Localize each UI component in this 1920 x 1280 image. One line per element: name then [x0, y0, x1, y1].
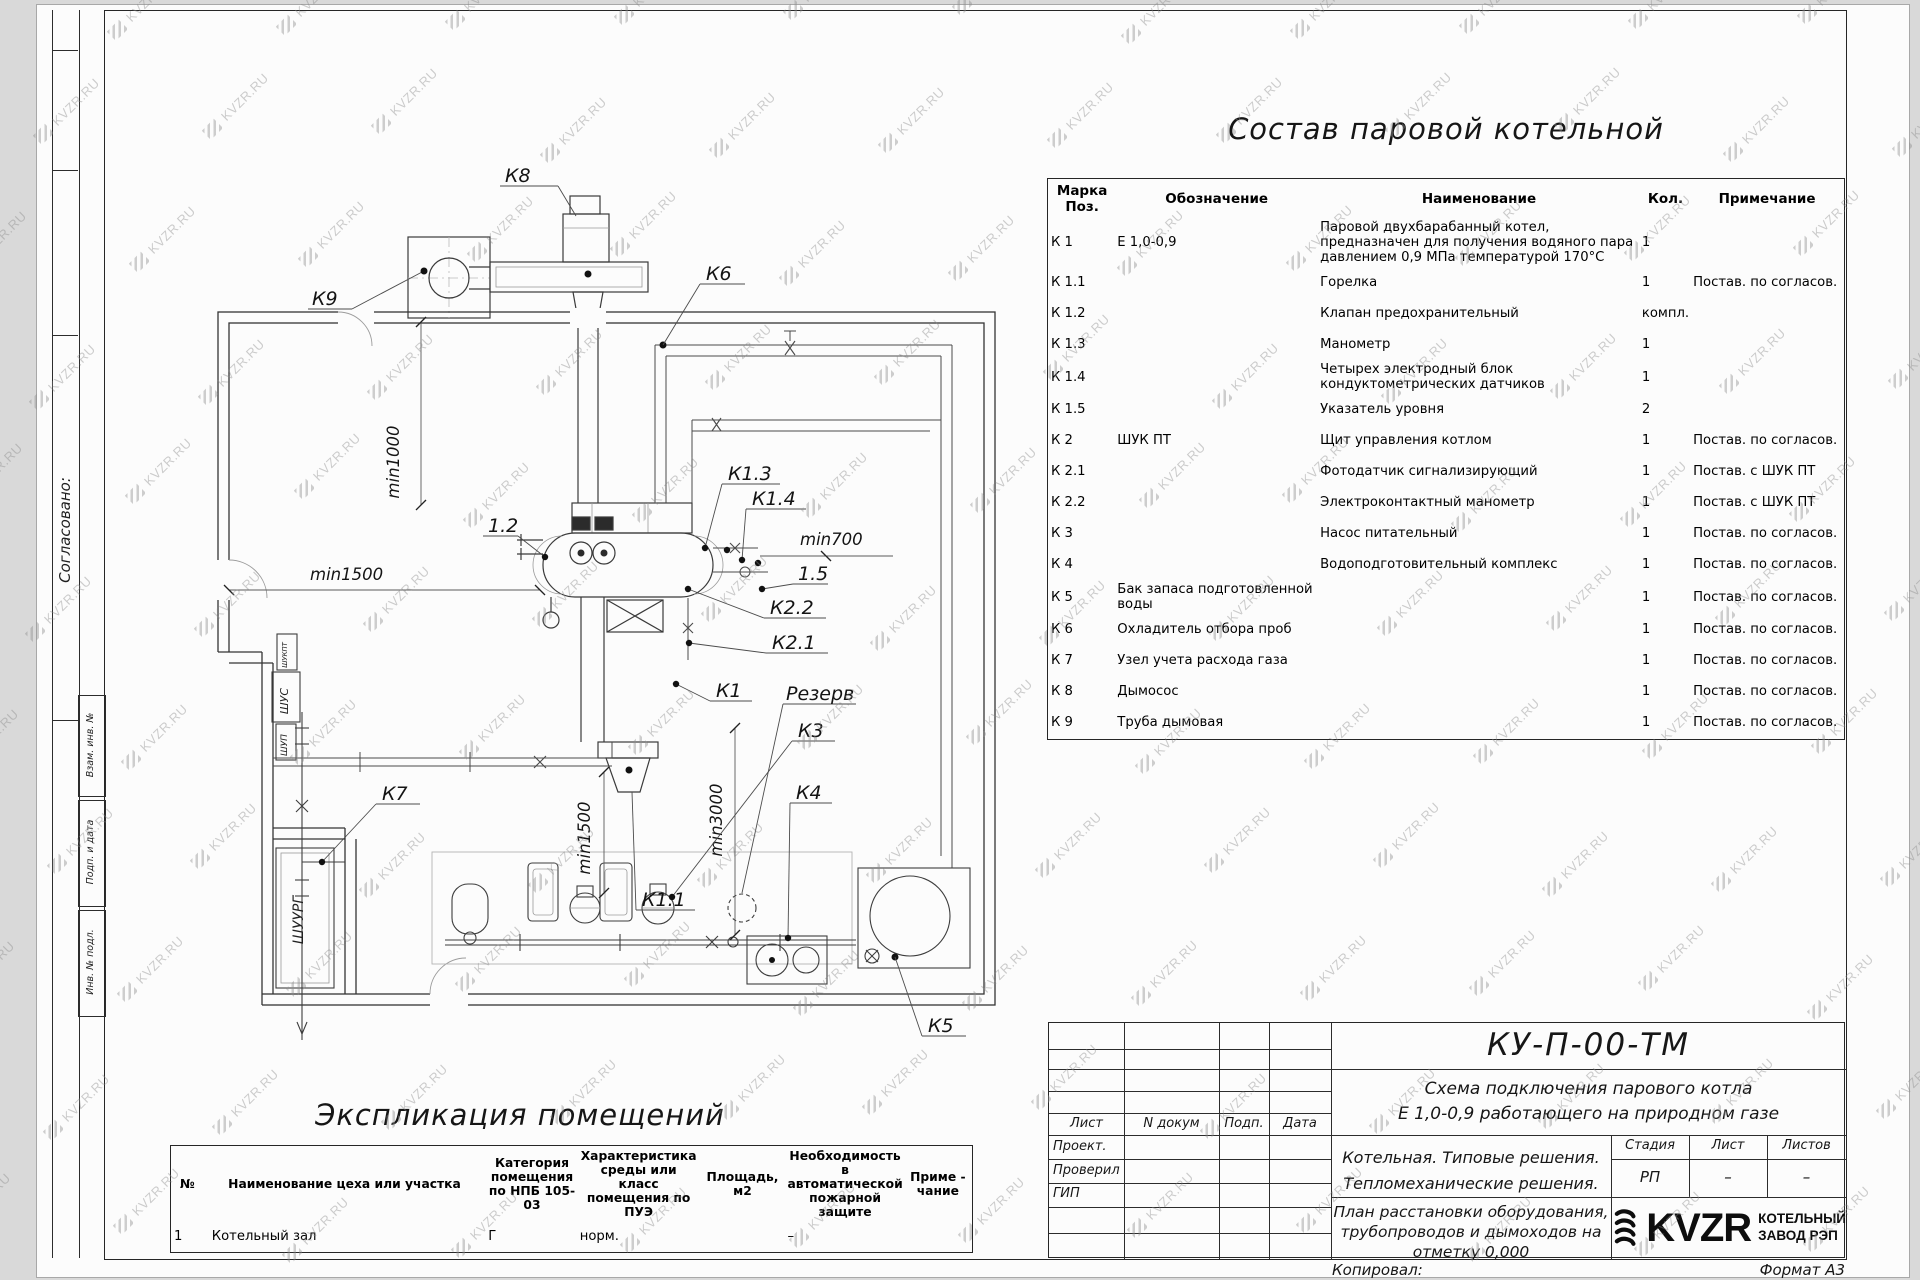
- comp-table-row: К 1.2Клапан предохранительныйкомпл.: [1050, 299, 1842, 328]
- comp-table-cell: Е 1,0-0,9: [1116, 219, 1317, 266]
- watermark: KVZR.RU: [0, 1170, 13, 1240]
- expl-table-row: 1Котельный залГнорм.–: [173, 1222, 970, 1250]
- company-line-1: КОТЕЛЬНЫЙ: [1758, 1211, 1846, 1226]
- comp-table-cell: [1116, 395, 1317, 424]
- watermark-text: KVZR.RU: [0, 706, 21, 759]
- tb-col-list: Лист: [1049, 1116, 1124, 1131]
- margin-divider: [52, 720, 78, 721]
- comp-table-cell: К 3: [1050, 519, 1114, 548]
- comp-table-cell: Дымосос: [1116, 677, 1317, 706]
- label-k1: К1: [716, 680, 742, 702]
- comp-table-cell: компл.: [1641, 299, 1690, 328]
- comp-table-cell: 1: [1641, 457, 1690, 486]
- dim-min700: min700: [800, 530, 863, 549]
- comp-table-cell: К 1.2: [1050, 299, 1114, 328]
- comp-table-cell: [1319, 677, 1639, 706]
- comp-table-cell: 1: [1641, 615, 1690, 644]
- comp-table-cell: Бак запаса подготовленной воды: [1116, 581, 1317, 613]
- tb-subtitle-1: Схема подключения парового котла: [1425, 1079, 1753, 1099]
- comp-table-cell: Щит управления котлом: [1319, 426, 1639, 455]
- comp-table-cell: Постав. по согласов.: [1692, 550, 1842, 579]
- watermark-text: KVZR.RU: [0, 938, 17, 991]
- comp-table-cell: [1692, 330, 1842, 359]
- expl-table-cell: Г: [487, 1222, 576, 1250]
- comp-table-row: К 7Узел учета расхода газа1Постав. по со…: [1050, 646, 1842, 675]
- comp-column-header: Наименование: [1319, 181, 1639, 217]
- comp-table-cell: Электроконтактный манометр: [1319, 488, 1639, 517]
- cabinet-label-shukpt: ШУКПТ: [281, 641, 289, 667]
- explication-table-title: Экспликация помещений: [170, 1098, 870, 1132]
- comp-table-row: К 2ШУК ПТЩит управления котлом1Постав. п…: [1050, 426, 1842, 455]
- expl-column-header: Приме - чание: [906, 1148, 970, 1220]
- comp-table-row: К 2.2Электроконтактный манометр1Постав. …: [1050, 488, 1842, 517]
- cabinet-label-shup: ШУП: [280, 734, 290, 756]
- comp-column-header: Кол.: [1641, 181, 1690, 217]
- margin-column-outer: [52, 10, 80, 1258]
- dim-min1500-left: min1500: [310, 565, 383, 584]
- expl-column-header: Категория помещения по НПБ 105-03: [487, 1148, 576, 1220]
- tb-drawing-1: План расстановки оборудования,: [1334, 1203, 1609, 1221]
- expl-column-header: Характеристика среды или класс помещения…: [579, 1148, 699, 1220]
- tb-subtitle-2: Е 1,0-0,9 работающего на природном газе: [1398, 1104, 1779, 1124]
- comp-table-cell: Фотодатчик сигнализирующий: [1319, 457, 1639, 486]
- comp-table-cell: [1692, 219, 1842, 266]
- watermark: KVZR.RU: [0, 440, 25, 510]
- cabinet-label-shus: ШУС: [278, 688, 291, 714]
- comp-table-cell: К 5: [1050, 581, 1114, 613]
- label-k9: К9: [312, 288, 338, 310]
- expl-column-header: №: [173, 1148, 202, 1220]
- label-k1-1: К1.1: [642, 889, 686, 911]
- label-rezerv: Резерв: [786, 683, 854, 705]
- comp-table-cell: [1116, 457, 1317, 486]
- comp-table-cell: [1116, 550, 1317, 579]
- comp-table-cell: [1116, 268, 1317, 297]
- kvzr-coil-icon: [1611, 1205, 1639, 1251]
- expl-table-cell: [701, 1222, 785, 1250]
- comp-table-cell: 1: [1641, 581, 1690, 613]
- comp-table-cell: Постав. с ШУК ПТ: [1692, 457, 1842, 486]
- comp-table-cell: К 1.3: [1050, 330, 1114, 359]
- comp-table-cell: 1: [1641, 330, 1690, 359]
- comp-table-row: К 1.3Манометр1: [1050, 330, 1842, 359]
- comp-table-row: К 2.1Фотодатчик сигнализирующий1Постав. …: [1050, 457, 1842, 486]
- tb-col-data: Дата: [1269, 1116, 1331, 1131]
- k5-tank: [858, 868, 970, 968]
- dim-min1500-bottom: min1500: [575, 801, 594, 874]
- agreed-label: Согласовано:: [55, 430, 75, 630]
- label-k3: К3: [798, 720, 824, 742]
- comp-table-cell: Постав. по согласов.: [1692, 581, 1842, 613]
- comp-table-cell: [1692, 299, 1842, 328]
- comp-table-cell: Постав. по согласов.: [1692, 268, 1842, 297]
- comp-table-cell: Насос питательный: [1319, 519, 1639, 548]
- comp-table-cell: 1: [1641, 708, 1690, 737]
- comp-table-cell: Постав. по согласов.: [1692, 708, 1842, 737]
- expl-table-cell: Котельный зал: [204, 1222, 486, 1250]
- tb-drawing-2: трубопроводов и дымоходов на: [1340, 1223, 1601, 1241]
- tb-stage-label: Стадия: [1611, 1138, 1689, 1153]
- label-k6: К6: [706, 263, 732, 285]
- company-line-2: ЗАВОД РЭП: [1758, 1228, 1838, 1243]
- tb-col-podp: Подп.: [1219, 1116, 1269, 1131]
- comp-table-cell: Паровой двухбарабанный котел, предназнач…: [1319, 219, 1639, 266]
- label-k1-4: К1.4: [752, 488, 796, 510]
- comp-table-cell: [1692, 395, 1842, 424]
- expl-table-cell: норм.: [579, 1222, 699, 1250]
- gas-annex: [276, 712, 345, 1040]
- comp-table-cell: Постав. по согласов.: [1692, 519, 1842, 548]
- comp-table-row: К 9Труба дымовая1Постав. по согласов.: [1050, 708, 1842, 737]
- explication-table: №Наименование цеха или участкаКатегория …: [170, 1145, 973, 1253]
- margin-divider: [52, 170, 78, 171]
- watermark: KVZR.RU: [0, 208, 29, 278]
- comp-table-row: К 4Водоподготовительный комплекс1Постав.…: [1050, 550, 1842, 579]
- comp-table-cell: К 1.1: [1050, 268, 1114, 297]
- comp-column-header: Примечание: [1692, 181, 1842, 217]
- comp-table-cell: 1: [1641, 426, 1690, 455]
- comp-table-row: К 1Е 1,0-0,9Паровой двухбарабанный котел…: [1050, 219, 1842, 266]
- comp-table-row: К 8Дымосос1Постав. по согласов.: [1050, 677, 1842, 706]
- watermark: KVZR.RU: [0, 706, 21, 776]
- title-block: Лист N докум Подп. Дата Проект. Проверил…: [1048, 1022, 1845, 1258]
- tb-doc-code: КУ-П-00-ТМ: [1331, 1027, 1846, 1063]
- comp-column-header: Обозначение: [1116, 181, 1317, 217]
- format-label: Формат А3: [1700, 1261, 1845, 1279]
- tb-sheets-label: Листов: [1767, 1138, 1846, 1153]
- callout-leaders: [308, 186, 966, 1036]
- feed-pipes: [273, 742, 612, 772]
- comp-table-cell: Труба дымовая: [1116, 708, 1317, 737]
- tb-sheet-label: Лист: [1689, 1138, 1767, 1153]
- comp-column-header: Марка Поз.: [1050, 181, 1114, 217]
- comp-table-row: К 1.5Указатель уровня2: [1050, 395, 1842, 424]
- comp-table-cell: К 1.5: [1050, 395, 1114, 424]
- stamp-label-vzam: Взам. инв. №: [85, 690, 97, 800]
- comp-table-cell: 2: [1641, 395, 1690, 424]
- comp-table-cell: 1: [1641, 646, 1690, 675]
- comp-table-cell: Узел учета расхода газа: [1116, 646, 1317, 675]
- label-k2-2: К2.2: [770, 597, 814, 619]
- comp-table-cell: Постав. по согласов.: [1692, 426, 1842, 455]
- comp-table-cell: 1: [1641, 550, 1690, 579]
- comp-table-row: К 5Бак запаса подготовленной воды1Постав…: [1050, 581, 1842, 613]
- comp-table-cell: К 7: [1050, 646, 1114, 675]
- expl-column-header: Наименование цеха или участка: [204, 1148, 486, 1220]
- comp-table-row: К 6Охладитель отбора проб1Постав. по сог…: [1050, 615, 1842, 644]
- comp-table-cell: [1116, 299, 1317, 328]
- tb-role-gip: ГИП: [1053, 1186, 1128, 1201]
- dim-min1000: min1000: [384, 425, 403, 498]
- expl-table-cell: 1: [173, 1222, 202, 1250]
- comp-table-cell: 1: [1641, 488, 1690, 517]
- comp-table-cell: Горелка: [1319, 268, 1639, 297]
- water-treatment-area: [432, 852, 856, 984]
- stamp-label-podp: Подп. и дата: [85, 797, 97, 907]
- comp-table-cell: 1: [1641, 519, 1690, 548]
- kvzr-logo-text: KVZR: [1646, 1206, 1751, 1251]
- comp-table-cell: К 4: [1050, 550, 1114, 579]
- tb-drawing-3: отметку 0,000: [1413, 1243, 1530, 1261]
- tb-sheet-value: –: [1689, 1168, 1767, 1186]
- tb-col-ndocum: N докум: [1124, 1116, 1219, 1131]
- comp-table-cell: 1: [1641, 268, 1690, 297]
- wall-step-and-partitions: [218, 312, 466, 1005]
- comp-table-cell: [1116, 330, 1317, 359]
- comp-table-cell: 1: [1641, 361, 1690, 393]
- expl-table-cell: –: [786, 1222, 903, 1250]
- comp-table-cell: 1: [1641, 677, 1690, 706]
- cabinet-label-shuurg: ШУУРГ: [291, 895, 307, 944]
- expl-column-header: Площадь, м2: [701, 1148, 785, 1220]
- comp-table-cell: [1319, 615, 1639, 644]
- label-k5: К5: [928, 1015, 954, 1037]
- copied-label: Копировал:: [1332, 1261, 1423, 1279]
- comp-table-cell: 1: [1641, 219, 1690, 266]
- boiler-k1: [517, 503, 723, 792]
- label-k4: К4: [796, 782, 822, 804]
- tb-project-1: Котельная. Типовые решения.: [1342, 1148, 1600, 1167]
- tb-role-proekt: Проект.: [1053, 1139, 1128, 1154]
- margin-divider: [52, 50, 78, 51]
- comp-table-cell: Указатель уровня: [1319, 395, 1639, 424]
- comp-table-cell: Охладитель отбора проб: [1116, 615, 1317, 644]
- tb-project-2: Тепломеханические решения.: [1343, 1174, 1598, 1193]
- comp-table-cell: К 1: [1050, 219, 1114, 266]
- comp-table-cell: [1116, 519, 1317, 548]
- comp-table-cell: Клапан предохранительный: [1319, 299, 1639, 328]
- comp-table-cell: [1692, 361, 1842, 393]
- comp-table-row: К 3Насос питательный1Постав. по согласов…: [1050, 519, 1842, 548]
- expl-column-header: Необходимость в автоматической пожарной …: [786, 1148, 903, 1220]
- comp-table-cell: [1319, 646, 1639, 675]
- comp-table-cell: К 8: [1050, 677, 1114, 706]
- watermark: KVZR.RU: [0, 938, 17, 1008]
- label-1-5: 1.5: [798, 563, 828, 585]
- comp-table-cell: Четырех электродный блок кондуктометриче…: [1319, 361, 1639, 393]
- dimensions: [224, 317, 893, 940]
- comp-table-cell: К 2: [1050, 426, 1114, 455]
- comp-table-cell: Постав. по согласов.: [1692, 615, 1842, 644]
- comp-table-cell: Водоподготовительный комплекс: [1319, 550, 1639, 579]
- comp-table-cell: [1319, 581, 1639, 613]
- comp-table-row: К 1.1Горелка1Постав. по согласов.: [1050, 268, 1842, 297]
- watermark-text: KVZR.RU: [0, 440, 25, 493]
- comp-table-cell: Постав. по согласов.: [1692, 646, 1842, 675]
- margin-divider: [52, 335, 78, 336]
- label-k7: К7: [382, 783, 408, 805]
- drawing-sheet-page: { "watermark": { "text": "KVZR.RU" }, "s…: [0, 0, 1920, 1280]
- comp-table-cell: К 9: [1050, 708, 1114, 737]
- plan-drawing: ШУКПТ ШУС ШУП ШУУРГ min1000 min1500 min7…: [110, 150, 1010, 1060]
- comp-table-row: К 1.4Четырех электродный блок кондуктоме…: [1050, 361, 1842, 393]
- stamp-label-inv: Инв. № подл.: [85, 907, 97, 1017]
- tb-stage-value: РП: [1611, 1168, 1689, 1186]
- dim-min3000: min3000: [707, 783, 726, 856]
- comp-table-cell: [1319, 708, 1639, 737]
- comp-table-cell: К 6: [1050, 615, 1114, 644]
- tb-sheets-value: –: [1767, 1168, 1846, 1186]
- wall-openings: [212, 308, 606, 1012]
- composition-table: Марка Поз.ОбозначениеНаименованиеКол.При…: [1047, 178, 1845, 740]
- watermark-text: KVZR.RU: [0, 1170, 13, 1223]
- comp-table-cell: К 2.2: [1050, 488, 1114, 517]
- comp-table-cell: [1116, 361, 1317, 393]
- comp-table-cell: Постав. по согласов.: [1692, 677, 1842, 706]
- watermark: KVZR.RU: [0, 0, 7, 13]
- label-k1-3: К1.3: [728, 463, 772, 485]
- watermark-text: KVZR.RU: [0, 208, 29, 261]
- label-k8: К8: [505, 165, 531, 187]
- expl-table-cell: [906, 1222, 970, 1250]
- comp-table-cell: К 1.4: [1050, 361, 1114, 393]
- label-k2-1: К2.1: [772, 632, 816, 654]
- comp-table-cell: ШУК ПТ: [1116, 426, 1317, 455]
- chimney-assembly: [408, 196, 648, 503]
- comp-table-cell: Манометр: [1319, 330, 1639, 359]
- comp-table-cell: К 2.1: [1050, 457, 1114, 486]
- tb-role-proveril: Проверил: [1053, 1163, 1128, 1178]
- comp-table-cell: Постав. с ШУК ПТ: [1692, 488, 1842, 517]
- composition-table-title: Состав паровой котельной: [1047, 112, 1845, 146]
- label-1-2: 1.2: [488, 515, 518, 537]
- comp-table-cell: [1116, 488, 1317, 517]
